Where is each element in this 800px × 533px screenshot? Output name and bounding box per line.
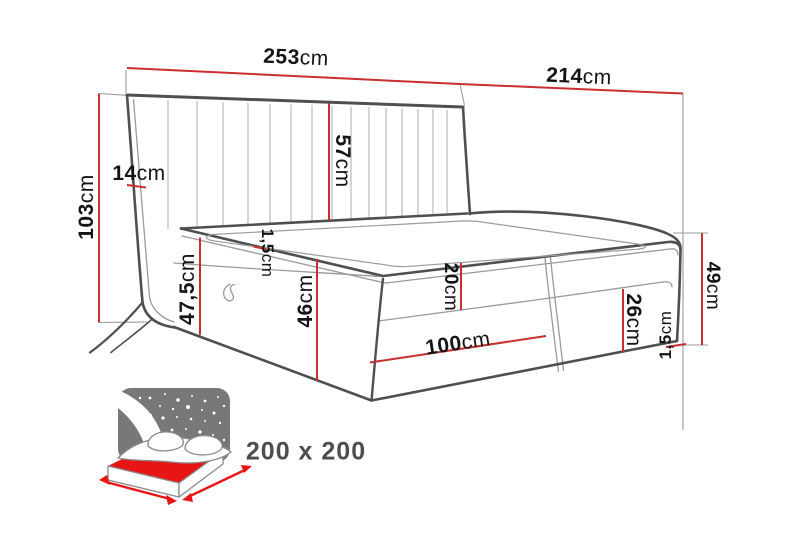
headboard-right-edge <box>463 107 470 214</box>
mattress-front-right-rim <box>383 242 681 276</box>
mattress-right-edge <box>469 212 681 341</box>
foot-divider-line-2 <box>551 258 564 371</box>
base-bottom-foot-edge <box>372 341 678 401</box>
dimension-label-topper-right: 1,5cm <box>656 311 676 360</box>
wing-floor-edge <box>90 303 142 353</box>
dimension-label-side-height-total: 47,5cm <box>176 253 200 325</box>
dimension-label-headboard-width: 253cm <box>263 45 330 72</box>
dimension-label-bed-length: 214cm <box>546 64 612 91</box>
dimension-label-headboard-above-mattress: 57cm <box>330 134 354 187</box>
topper-seam-left <box>182 236 385 283</box>
dimension-label-storage-box-height: 26cm <box>621 293 645 346</box>
bed-size-icon <box>99 385 252 505</box>
dimension-label-mattress-height: 20cm <box>439 263 461 311</box>
topper-seam-right <box>386 249 678 283</box>
dimension-label-wing-depth: 14cm <box>112 162 165 186</box>
mattress-front-left-rim <box>181 229 383 277</box>
mattress <box>181 212 681 341</box>
mattress-rear-rim <box>181 214 467 229</box>
extension-lines <box>99 70 708 430</box>
headboard-channel-lines <box>168 100 447 229</box>
dimension-label-base-height: 46cm <box>294 274 318 327</box>
bed-dimension-diagram: 253cm 214cm 103cm 14cm 57cm 1,5cm 47,5cm… <box>0 0 800 533</box>
dim-line-253 <box>127 68 460 84</box>
headboard-top-edge <box>127 95 463 107</box>
diagram-canvas <box>0 0 800 533</box>
dimension-label-headboard-height: 103cm <box>75 174 99 240</box>
bed-size-label: 200 x 200 <box>246 438 366 467</box>
front-corner-edge <box>372 279 384 401</box>
storage-handle <box>224 284 235 301</box>
bed-base <box>174 258 677 401</box>
dimension-label-topper-left: 1,5cm <box>257 229 277 278</box>
wing-floor-inner-edge <box>111 320 151 353</box>
dimension-label-foot-end-height: 49cm <box>701 262 723 310</box>
